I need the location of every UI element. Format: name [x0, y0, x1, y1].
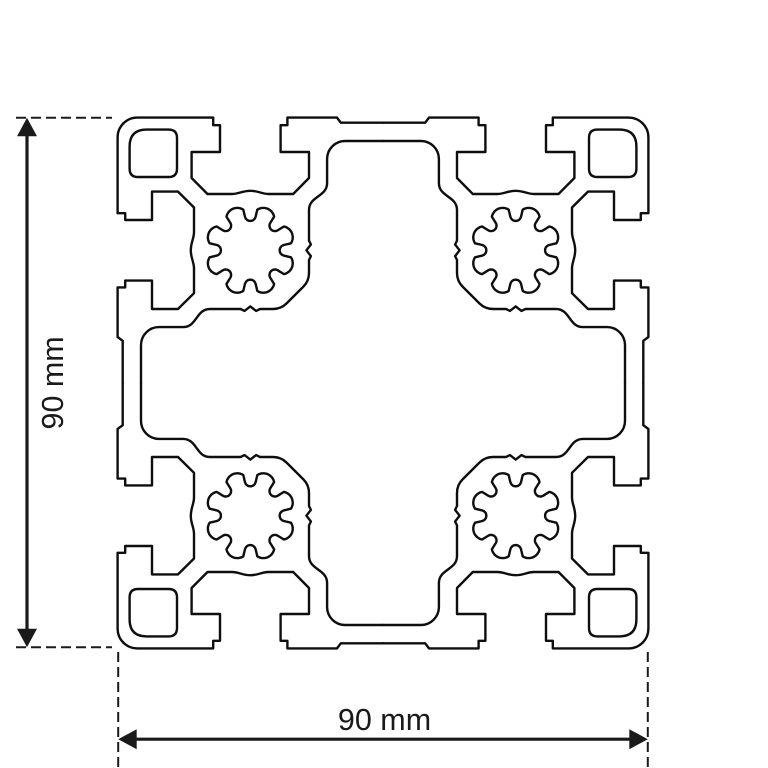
- svg-text:90 mm: 90 mm: [36, 336, 70, 429]
- svg-text:90 mm: 90 mm: [338, 703, 431, 737]
